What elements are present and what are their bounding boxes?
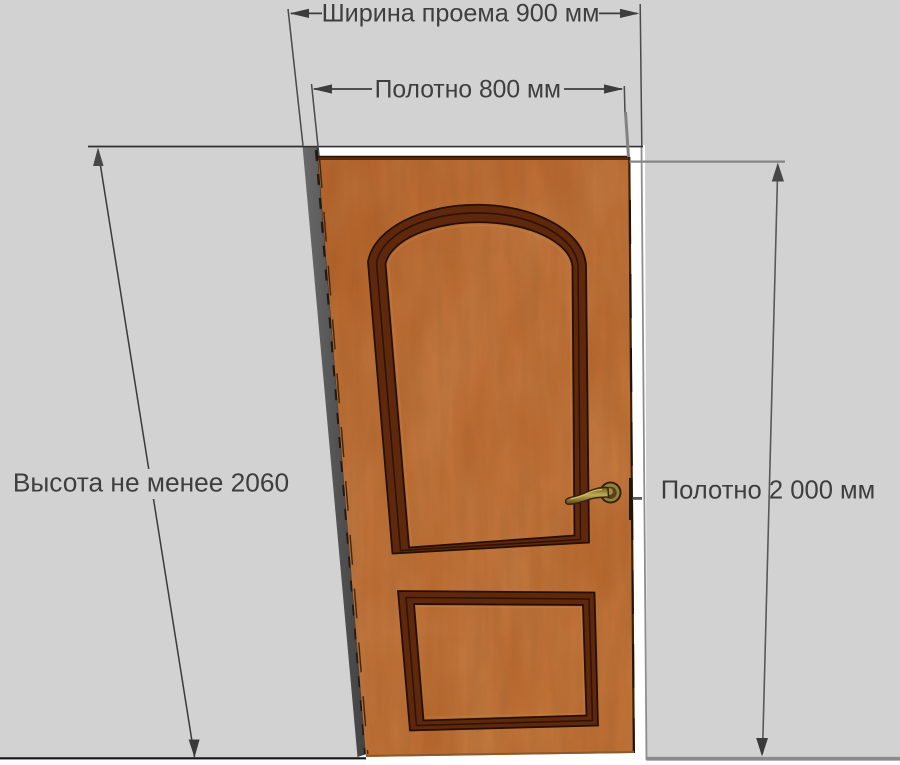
- svg-text:Полотно 800 мм: Полотно 800 мм: [375, 77, 561, 104]
- svg-text:Ширина проема 900 мм: Ширина проема 900 мм: [322, 0, 600, 28]
- svg-text:Высота не менее 2060: Высота не менее 2060: [13, 467, 289, 497]
- svg-text:Полотно 2 000 мм: Полотно 2 000 мм: [661, 476, 876, 504]
